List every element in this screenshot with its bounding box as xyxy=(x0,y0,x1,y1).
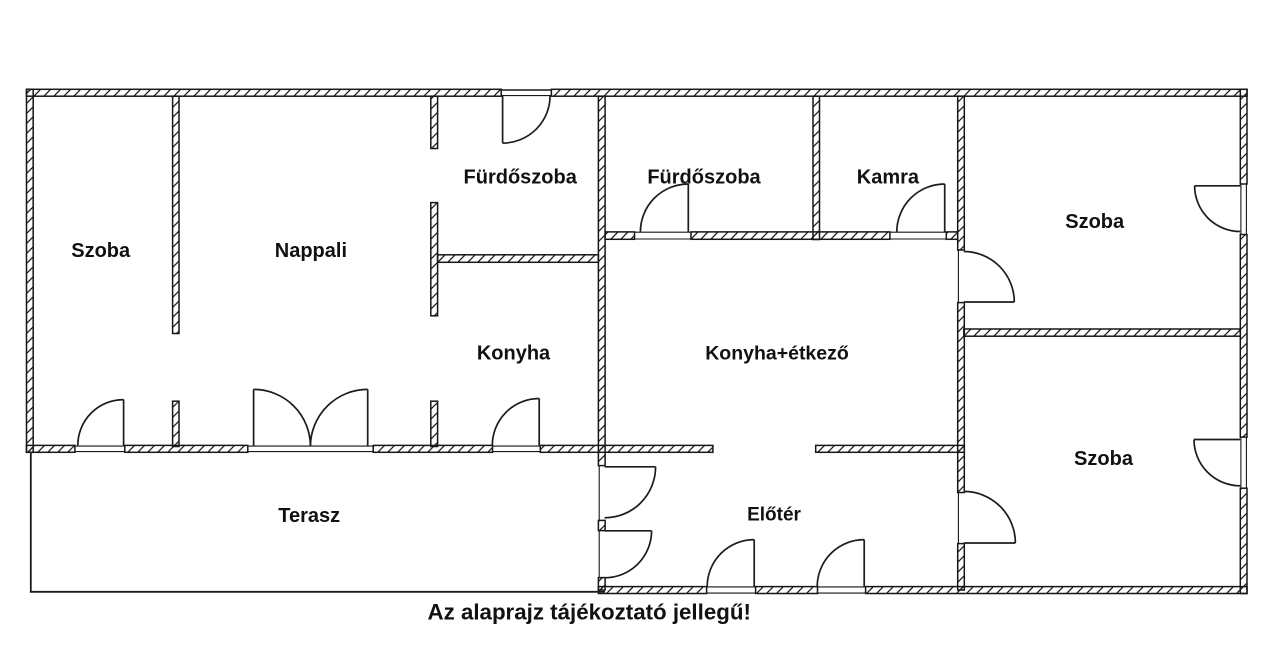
svg-text:Konyha+étkező: Konyha+étkező xyxy=(705,342,849,364)
svg-text:Előtér: Előtér xyxy=(747,505,801,526)
svg-text:Szoba: Szoba xyxy=(1074,448,1134,470)
svg-text:Fürdőszoba: Fürdőszoba xyxy=(647,167,761,189)
svg-text:Fürdőszoba: Fürdőszoba xyxy=(464,167,578,189)
svg-text:Az alaprajz tájékoztató jelleg: Az alaprajz tájékoztató jellegű! xyxy=(428,600,751,625)
svg-text:Szoba: Szoba xyxy=(1065,211,1125,233)
svg-text:Kamra: Kamra xyxy=(857,167,920,189)
svg-text:Terasz: Terasz xyxy=(278,505,340,527)
svg-text:Szoba: Szoba xyxy=(71,240,131,262)
svg-text:Nappali: Nappali xyxy=(275,240,347,262)
svg-text:Konyha: Konyha xyxy=(477,342,551,364)
